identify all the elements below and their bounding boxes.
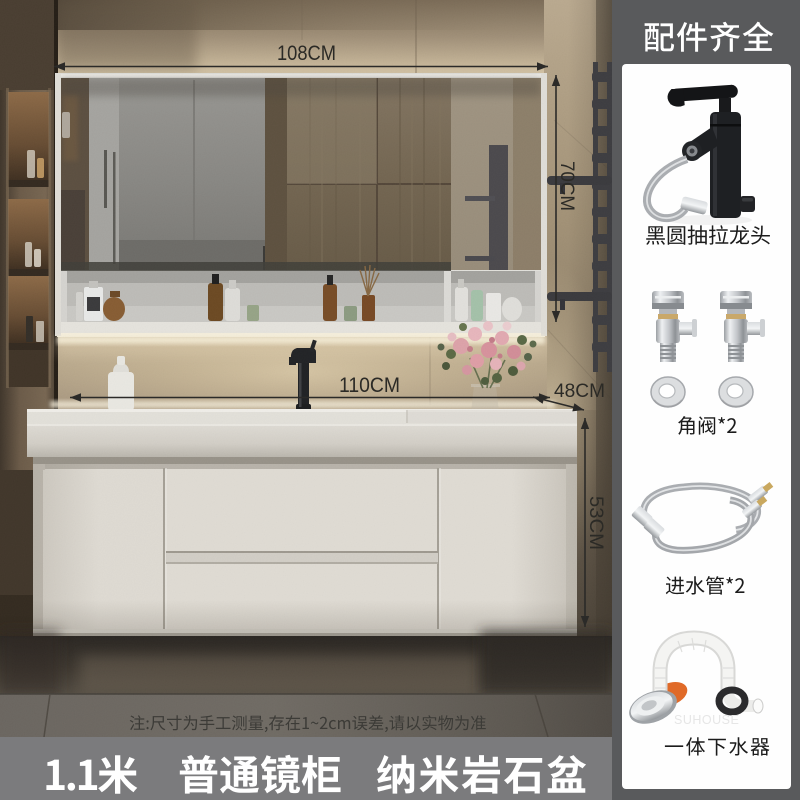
- svg-text:70CM: 70CM: [556, 161, 578, 211]
- svg-text:48CM: 48CM: [554, 380, 605, 402]
- svg-text:SUHOUSE: SUHOUSE: [674, 713, 739, 727]
- svg-text:110CM: 110CM: [339, 373, 400, 397]
- svg-text:108CM: 108CM: [277, 41, 336, 65]
- svg-text:53CM: 53CM: [585, 496, 607, 550]
